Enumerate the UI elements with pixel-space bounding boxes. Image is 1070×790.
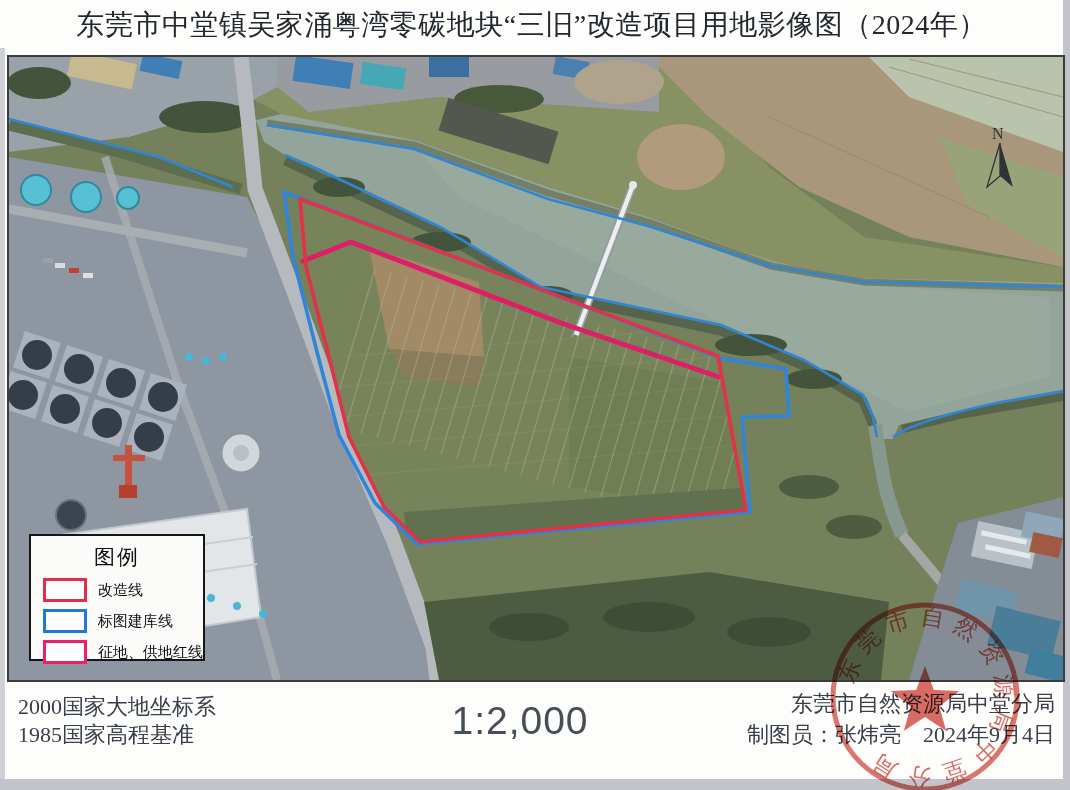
- agency-info: 东莞市自然资源局中堂分局 制图员：张炜亮2024年9月4日: [747, 688, 1055, 750]
- datum-line1: 2000国家大地坐标系: [18, 693, 216, 721]
- legend-item-redline: 征地、供地红线: [43, 640, 203, 664]
- legend-item-renovation: 改造线: [43, 578, 203, 602]
- dirt-patch: [637, 124, 725, 190]
- mapping-database-line-swatch: [43, 609, 87, 633]
- legend-title: 图例: [31, 543, 203, 571]
- scan-edge-bottom: [0, 779, 1070, 790]
- svg-text:N: N: [992, 125, 1004, 142]
- cartographer-name: 张炜亮: [835, 722, 901, 747]
- map-frame: N 图例 改造线 标图建库线 征地、供地红线: [7, 55, 1065, 682]
- datum-line2: 1985国家高程基准: [18, 721, 216, 749]
- datum-info: 2000国家大地坐标系 1985国家高程基准: [18, 693, 216, 749]
- map-date: 2024年9月4日: [923, 722, 1055, 747]
- agency-name: 东莞市自然资源局中堂分局: [747, 688, 1055, 719]
- top-buildings: [277, 57, 664, 113]
- cartographer-label: 制图员：: [747, 722, 835, 747]
- legend-item-mapdb: 标图建库线: [43, 609, 203, 633]
- page-title: 东莞市中堂镇吴家涌粤湾零碳地块“三旧”改造项目用地影像图（2024年）: [0, 6, 1063, 44]
- land-supply-redline-swatch: [43, 640, 87, 664]
- scan-edge-left: [0, 48, 5, 790]
- scale-label: 1:2,000: [378, 699, 662, 743]
- cartographer-line: 制图员：张炜亮2024年9月4日: [747, 719, 1055, 750]
- renovation-line-swatch: [43, 578, 87, 602]
- legend-box: 图例 改造线 标图建库线 征地、供地红线: [29, 534, 205, 661]
